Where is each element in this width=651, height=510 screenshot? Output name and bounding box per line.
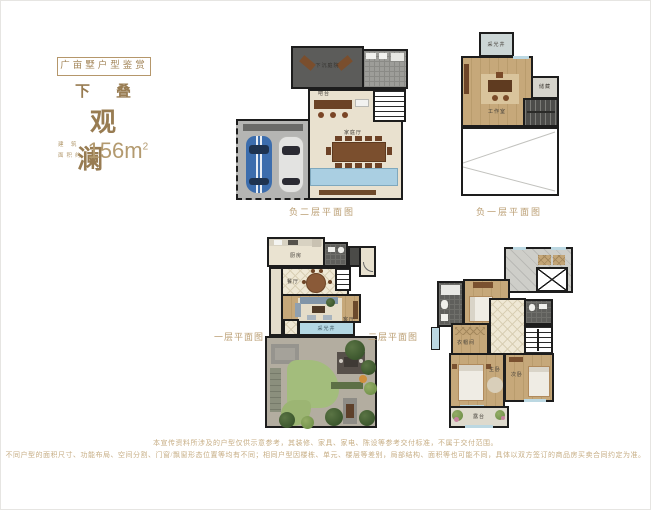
chair bbox=[302, 280, 306, 284]
flowers bbox=[501, 416, 505, 420]
window bbox=[513, 247, 526, 250]
bar-island bbox=[355, 99, 369, 107]
area-prefix-top: 建 筑 bbox=[58, 140, 84, 148]
room-label-second: 次卧 bbox=[511, 373, 523, 378]
disclaimer-line2: 不同户型的面积尺寸、功能布局、空间分割、门窗/飘窗形态位置等均有不同；相同户型因… bbox=[1, 449, 650, 461]
area-sup: 2 bbox=[143, 142, 149, 153]
stair-rail bbox=[537, 329, 539, 351]
area-prefix-bottom: 面积约 bbox=[58, 151, 84, 159]
kitchen: 厨房 bbox=[267, 237, 325, 267]
caption-level2: 二层平面图 bbox=[367, 330, 419, 343]
bookshelf bbox=[464, 64, 469, 94]
pillows bbox=[470, 297, 475, 321]
car-rear-window bbox=[282, 178, 300, 185]
basement2-bathroom bbox=[362, 49, 408, 89]
sink bbox=[366, 53, 376, 59]
room-label-dining: 餐厅 bbox=[287, 280, 299, 285]
sink bbox=[328, 247, 335, 252]
room-label-sunken-courtyard: 下沉庭院 bbox=[293, 64, 362, 69]
chair bbox=[319, 269, 323, 273]
pillows bbox=[529, 367, 549, 372]
tree bbox=[325, 408, 343, 426]
fridge bbox=[312, 239, 321, 247]
master-bedroom: 主卧 bbox=[449, 353, 505, 408]
staircase bbox=[335, 267, 351, 291]
car-windshield bbox=[282, 146, 300, 155]
chair bbox=[387, 147, 392, 155]
light-well: 采光井 bbox=[479, 32, 514, 57]
shrub-orange bbox=[359, 375, 367, 383]
nightstand bbox=[452, 364, 457, 369]
dresser bbox=[473, 282, 493, 288]
hedge bbox=[331, 382, 363, 389]
chair bbox=[335, 136, 342, 141]
armchair bbox=[307, 315, 316, 320]
walkin-closet: 衣帽间 bbox=[451, 323, 489, 355]
pool bbox=[310, 168, 398, 186]
upper-terrace bbox=[504, 247, 573, 293]
toilet bbox=[441, 300, 448, 309]
floorplan-level2: 卧室 衣帽间 主卧 bbox=[431, 245, 575, 429]
bay-window bbox=[431, 327, 440, 350]
bar-stool bbox=[342, 112, 348, 118]
bathtub bbox=[441, 285, 460, 295]
chair bbox=[326, 147, 331, 155]
room-label-light-well: 采光井 bbox=[481, 43, 512, 48]
chair bbox=[503, 95, 509, 101]
area-figure: 建 筑 面积约 156m2 bbox=[58, 140, 148, 162]
chair bbox=[345, 136, 352, 141]
stove bbox=[288, 240, 298, 245]
disclaimer: 本宣传资料所涉及的户型仅供示意参考，其装修、家具、家电、陈设等参考交付标准，不属… bbox=[1, 437, 650, 461]
staircase bbox=[373, 89, 406, 122]
shaft-hatch bbox=[553, 255, 565, 265]
pillows bbox=[459, 365, 483, 371]
floorplan-basement2: 下沉庭院 吧台 家庭厅 bbox=[234, 44, 410, 200]
garden-shed bbox=[343, 398, 357, 424]
car-rear-window bbox=[249, 178, 269, 185]
light-well-strip: 采光井 bbox=[298, 321, 355, 336]
tree bbox=[359, 410, 375, 426]
coffee-table bbox=[312, 306, 325, 313]
room-label-bar: 吧台 bbox=[318, 92, 330, 97]
bench bbox=[319, 190, 376, 195]
shaft-hatch bbox=[538, 255, 551, 265]
garage bbox=[236, 119, 310, 200]
void-diagonals bbox=[463, 129, 557, 193]
flowers bbox=[454, 417, 459, 422]
room-label-light-well: 采光井 bbox=[300, 327, 353, 332]
garage-cabinet bbox=[243, 124, 303, 131]
dresser bbox=[509, 357, 523, 362]
chair bbox=[339, 359, 343, 363]
floorplan-poster: 广亩墅户型鉴赏 下叠 观澜 建 筑 面积约 156m2 下沉庭院 bbox=[0, 0, 651, 510]
terrace: 露台 bbox=[449, 406, 509, 428]
stair-landing bbox=[527, 111, 555, 113]
bar-stool bbox=[318, 112, 324, 118]
bathroom bbox=[437, 281, 464, 327]
chair bbox=[375, 136, 382, 141]
room-label-storage: 储藏 bbox=[533, 85, 557, 90]
tree bbox=[364, 382, 377, 395]
chair bbox=[365, 136, 372, 141]
toilet bbox=[529, 304, 535, 311]
window bbox=[465, 425, 493, 428]
room-label-studio: 工作室 bbox=[463, 110, 531, 115]
patio-rug bbox=[275, 348, 295, 360]
second-bedroom: 次卧 bbox=[504, 353, 554, 402]
bathroom-small bbox=[524, 299, 553, 325]
garden bbox=[265, 336, 377, 428]
desk bbox=[488, 80, 512, 92]
car-windshield bbox=[249, 145, 269, 154]
chair bbox=[496, 72, 503, 78]
disclaimer-line1: 本宣传资料所涉及的户型仅供示意参考，其装修、家具、家电、陈设等参考交付标准，不属… bbox=[1, 437, 650, 449]
elevator bbox=[536, 267, 568, 292]
tree bbox=[361, 360, 376, 375]
bar-counter bbox=[314, 100, 352, 109]
car-blue bbox=[246, 136, 272, 193]
room-label-closet: 衣帽间 bbox=[457, 341, 475, 346]
staircase bbox=[524, 325, 553, 355]
shed-door bbox=[346, 404, 354, 418]
door-arc bbox=[363, 262, 373, 272]
floorplan-level1: 厨房 餐厅 bbox=[264, 234, 378, 429]
floorplan-basement1: 采光井 工作室 储藏 bbox=[459, 31, 561, 198]
room-label-kitchen: 厨房 bbox=[269, 254, 323, 259]
chair bbox=[492, 95, 498, 101]
area-number: 156m bbox=[88, 138, 143, 163]
series-badge: 广亩墅户型鉴赏 bbox=[57, 57, 151, 76]
product-type: 下叠 bbox=[45, 80, 161, 101]
wardrobe bbox=[455, 327, 485, 335]
car-white bbox=[278, 136, 304, 193]
sink bbox=[274, 240, 282, 245]
chair bbox=[328, 280, 332, 284]
caption-level1: 一层平面图 bbox=[214, 330, 264, 343]
tree bbox=[301, 416, 314, 429]
window bbox=[513, 56, 529, 59]
utility-room bbox=[323, 242, 348, 267]
hallway bbox=[489, 298, 526, 355]
sink bbox=[441, 314, 448, 321]
planter-strip bbox=[270, 368, 281, 412]
toilet bbox=[338, 247, 344, 253]
bed bbox=[528, 366, 550, 397]
caption-basement1: 负一层平面图 bbox=[453, 205, 565, 218]
sink bbox=[539, 304, 547, 309]
tree bbox=[279, 412, 295, 428]
room-label-terrace: 露台 bbox=[473, 415, 485, 420]
chair bbox=[311, 269, 315, 273]
area-prefix: 建 筑 面积约 bbox=[58, 140, 84, 162]
dining-table bbox=[332, 142, 386, 162]
armchair bbox=[323, 315, 332, 320]
bed bbox=[458, 364, 484, 401]
window bbox=[524, 399, 546, 402]
sunken-courtyard: 下沉庭院 bbox=[291, 46, 364, 89]
chair bbox=[355, 136, 362, 141]
staircase bbox=[523, 98, 559, 127]
rug bbox=[487, 377, 503, 393]
area-value: 156m2 bbox=[88, 140, 149, 162]
toilet bbox=[379, 53, 387, 59]
bar-stool bbox=[330, 112, 336, 118]
room-label-master: 主卧 bbox=[489, 368, 501, 373]
bathtub bbox=[391, 53, 404, 61]
entry-hall bbox=[359, 246, 376, 277]
tree bbox=[345, 340, 365, 360]
void-space bbox=[461, 127, 559, 196]
caption-basement2: 负二层平面图 bbox=[234, 205, 410, 218]
plant bbox=[326, 298, 335, 307]
hall-hatch bbox=[283, 319, 299, 336]
window bbox=[551, 247, 566, 250]
sofa bbox=[295, 303, 301, 317]
storage-room: 储藏 bbox=[531, 76, 559, 99]
round-dining-table bbox=[306, 273, 326, 293]
